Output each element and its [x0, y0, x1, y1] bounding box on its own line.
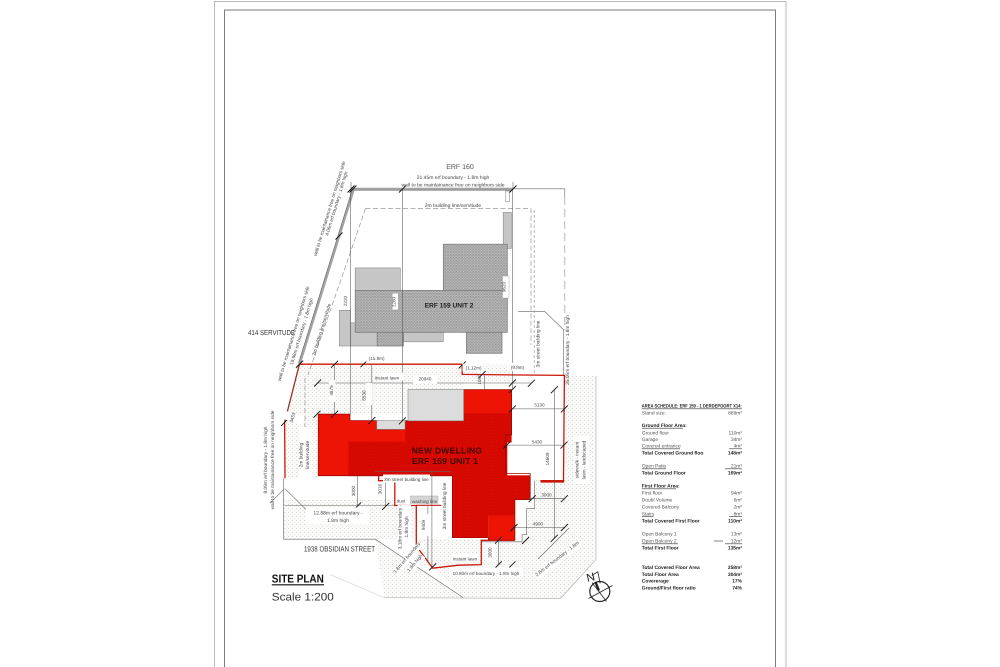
svg-text:2m building: 2m building: [299, 442, 305, 467]
svg-text:Total Ground Floor: Total Ground Floor: [642, 470, 686, 476]
svg-text:washing line: washing line: [412, 499, 438, 504]
svg-text:Total Floor Area: Total Floor Area: [642, 572, 679, 578]
svg-text:Total Covered First Floor: Total Covered First Floor: [642, 518, 700, 524]
svg-text:2m building line/servitude: 2m building line/servitude: [425, 203, 482, 209]
svg-text:Doubl Volume: Doubl Volume: [642, 497, 673, 503]
svg-text:4900: 4900: [533, 522, 544, 527]
svg-text:135m²: 135m²: [728, 545, 743, 551]
svg-text:34m²: 34m²: [731, 437, 743, 443]
svg-text:Ground floor: Ground floor: [642, 431, 670, 437]
svg-text:6m²: 6m²: [734, 497, 743, 503]
svg-text:8.09m erf boundary - 1.8m high: 8.09m erf boundary - 1.8m high: [263, 426, 269, 493]
svg-text:5530: 5530: [362, 390, 367, 401]
svg-text:Scale 1:200: Scale 1:200: [272, 592, 334, 604]
svg-text:110m²: 110m²: [729, 431, 743, 437]
svg-text:Stand size:: Stand size:: [642, 411, 666, 417]
svg-text:3m street building line: 3m street building line: [442, 482, 448, 529]
svg-text:12.88m erf boundary -: 12.88m erf boundary -: [313, 511, 363, 517]
svg-text:14609: 14609: [545, 452, 550, 465]
svg-text:NEW DWELLING: NEW DWELLING: [412, 446, 483, 456]
svg-text:1060: 1060: [477, 374, 482, 385]
svg-text:148m²: 148m²: [728, 450, 743, 456]
svg-text:instant lawn: instant lawn: [453, 557, 478, 562]
svg-text:ERF 159 UNIT 1: ERF 159 UNIT 1: [412, 456, 478, 466]
svg-text:Ground/First floor ratio: Ground/First floor ratio: [642, 585, 696, 591]
svg-text:Total First Floor: Total First Floor: [642, 545, 679, 551]
svg-text:889m²: 889m²: [728, 411, 742, 417]
svg-text:3000: 3000: [351, 485, 356, 496]
svg-text:414 SERVITUDE: 414 SERVITUDE: [248, 328, 295, 337]
svg-text:1.8m high: 1.8m high: [327, 518, 349, 524]
svg-text:17%: 17%: [732, 579, 742, 585]
svg-text:2m²: 2m²: [734, 505, 743, 511]
svg-text:3.18m erf boundary -: 3.18m erf boundary -: [398, 504, 404, 549]
svg-text:sidewalk - instant: sidewalk - instant: [575, 441, 581, 478]
svg-text:2280: 2280: [391, 296, 396, 307]
svg-text:1938 OBSIDIAN STREET: 1938 OBSIDIAN STREET: [304, 545, 375, 554]
svg-text:instant lawn: instant lawn: [375, 376, 400, 381]
svg-text:Total Covered Floor Area: Total Covered Floor Area: [642, 565, 700, 571]
svg-text:4879: 4879: [329, 385, 334, 396]
svg-text:21.45m erf boundary - 1.8m hig: 21.45m erf boundary - 1.8m high: [417, 175, 490, 181]
svg-text:169m²: 169m²: [728, 470, 743, 476]
svg-text:dust: dust: [397, 499, 406, 504]
svg-text:Garage: Garage: [642, 437, 659, 443]
svg-text:ERF 159 UNIT 2: ERF 159 UNIT 2: [425, 302, 474, 309]
svg-text:3m street building line: 3m street building line: [384, 477, 429, 482]
svg-text:(9.8m): (9.8m): [511, 365, 525, 370]
svg-text:10.80m erf boundary - 1.8m hig: 10.80m erf boundary - 1.8m high: [453, 571, 520, 576]
svg-text:13m²: 13m²: [731, 532, 743, 538]
svg-text:(1.12m): (1.12m): [466, 365, 482, 370]
svg-text:wall to be maintainance free o: wall to be maintainance free on neighbor…: [270, 410, 276, 509]
svg-text:lawn - landscaped: lawn - landscaped: [582, 440, 588, 479]
svg-text:3000: 3000: [541, 493, 552, 498]
svg-text:1.8m high: 1.8m high: [404, 516, 410, 537]
svg-text:35.05m erf boundary - 1.8m hig: 35.05m erf boundary - 1.8m high: [565, 315, 571, 385]
svg-text:First floor: First floor: [642, 491, 663, 497]
svg-text:(15.8m): (15.8m): [369, 356, 385, 361]
svg-text:5430: 5430: [532, 439, 543, 444]
svg-text:Total Covered Ground floo: Total Covered Ground floo: [642, 450, 704, 456]
svg-text:3m street building line: 3m street building line: [536, 320, 542, 367]
svg-text:94m²: 94m²: [731, 491, 743, 497]
svg-text:5130: 5130: [534, 403, 545, 408]
svg-text:258m²: 258m²: [728, 565, 743, 571]
svg-text:20940: 20940: [419, 377, 432, 382]
svg-text:ERF 160: ERF 160: [446, 164, 474, 171]
svg-text:9409: 9409: [421, 519, 426, 530]
svg-text:304m²: 304m²: [728, 572, 743, 578]
svg-text:Covered Balcony: Covered Balcony: [642, 505, 680, 511]
svg-text:Covererage: Covererage: [642, 579, 669, 585]
svg-text:Open Balcony 1: Open Balcony 1: [642, 532, 677, 538]
svg-text:3016: 3016: [378, 483, 383, 494]
svg-text:74%: 74%: [732, 585, 742, 591]
svg-text:2220: 2220: [343, 295, 348, 306]
svg-text:3000: 3000: [488, 547, 493, 558]
svg-text:110m²: 110m²: [728, 518, 742, 524]
svg-text:wall to be maintainance free o: wall to be maintainance free on neighbor…: [401, 182, 504, 188]
svg-text:SITE PLAN: SITE PLAN: [272, 574, 324, 586]
svg-text:line/servitude: line/servitude: [305, 441, 311, 470]
svg-text:9620: 9620: [502, 281, 507, 292]
